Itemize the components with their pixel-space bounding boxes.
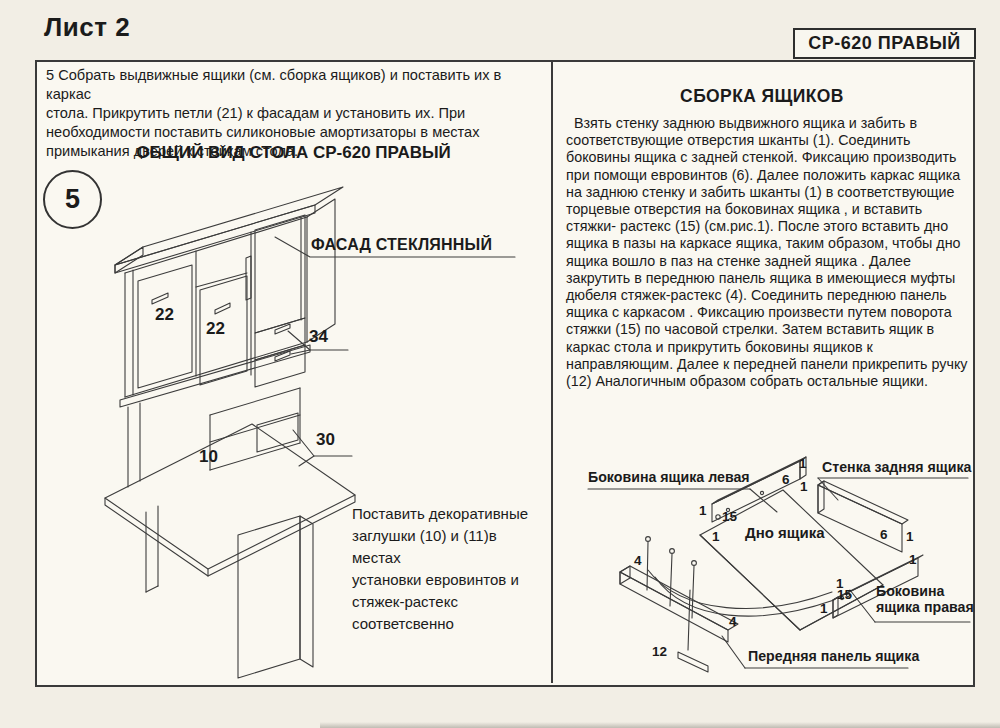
model-badge: СР-620 ПРАВЫЙ [793, 28, 976, 59]
callout-euroscrew-6: 6 [880, 527, 888, 542]
callout-dowel-1: 1 [906, 529, 914, 544]
callout-euroscrew-6: 6 [782, 472, 790, 487]
label-side-right: Боковина ящика правая [876, 583, 974, 615]
callout-bolt-4: 4 [729, 614, 737, 629]
callout-door-middle: 22 [206, 319, 225, 339]
callout-lower-drawer: 30 [316, 430, 335, 450]
callout-dowel-1: 1 [799, 456, 807, 471]
callout-dowel-1: 1 [909, 552, 917, 567]
callout-dowel-1: 1 [712, 529, 720, 544]
callout-desktop: 10 [199, 447, 218, 467]
assembly-heading: СБОРКА ЯЩИКОВ [553, 86, 971, 107]
glass-facade-label: ФАСАД СТЕКЛЯННЫЙ [311, 236, 492, 254]
label-back-wall: Стенка задняя ящика [822, 459, 971, 475]
label-front-panel: Передняя панель ящика [748, 648, 919, 664]
callout-dowel-1: 1 [800, 479, 808, 494]
scan-shadow-artifact [320, 722, 1000, 728]
label-bottom-panel: Дно ящика [745, 525, 825, 541]
callout-upper-drawers: 34 [309, 327, 328, 347]
assembly-paragraph: Взять стенку заднюю выдвижного ящика и з… [566, 115, 970, 390]
callout-bolt-4: 4 [634, 553, 642, 568]
callout-dowel-1: 1 [699, 503, 707, 518]
callout-handle-12: 12 [652, 644, 667, 659]
note-paragraph: Поставить декоративные заглушки (10) и (… [352, 503, 547, 635]
callout-door-left: 22 [155, 305, 174, 325]
callout-cam-15: 15 [722, 509, 737, 524]
callout-dowel-1: 1 [820, 601, 828, 616]
callout-cam-15: 15 [837, 587, 852, 602]
label-side-left: Боковина ящика левая [588, 469, 750, 485]
sheet-title: Лист 2 [44, 12, 130, 43]
